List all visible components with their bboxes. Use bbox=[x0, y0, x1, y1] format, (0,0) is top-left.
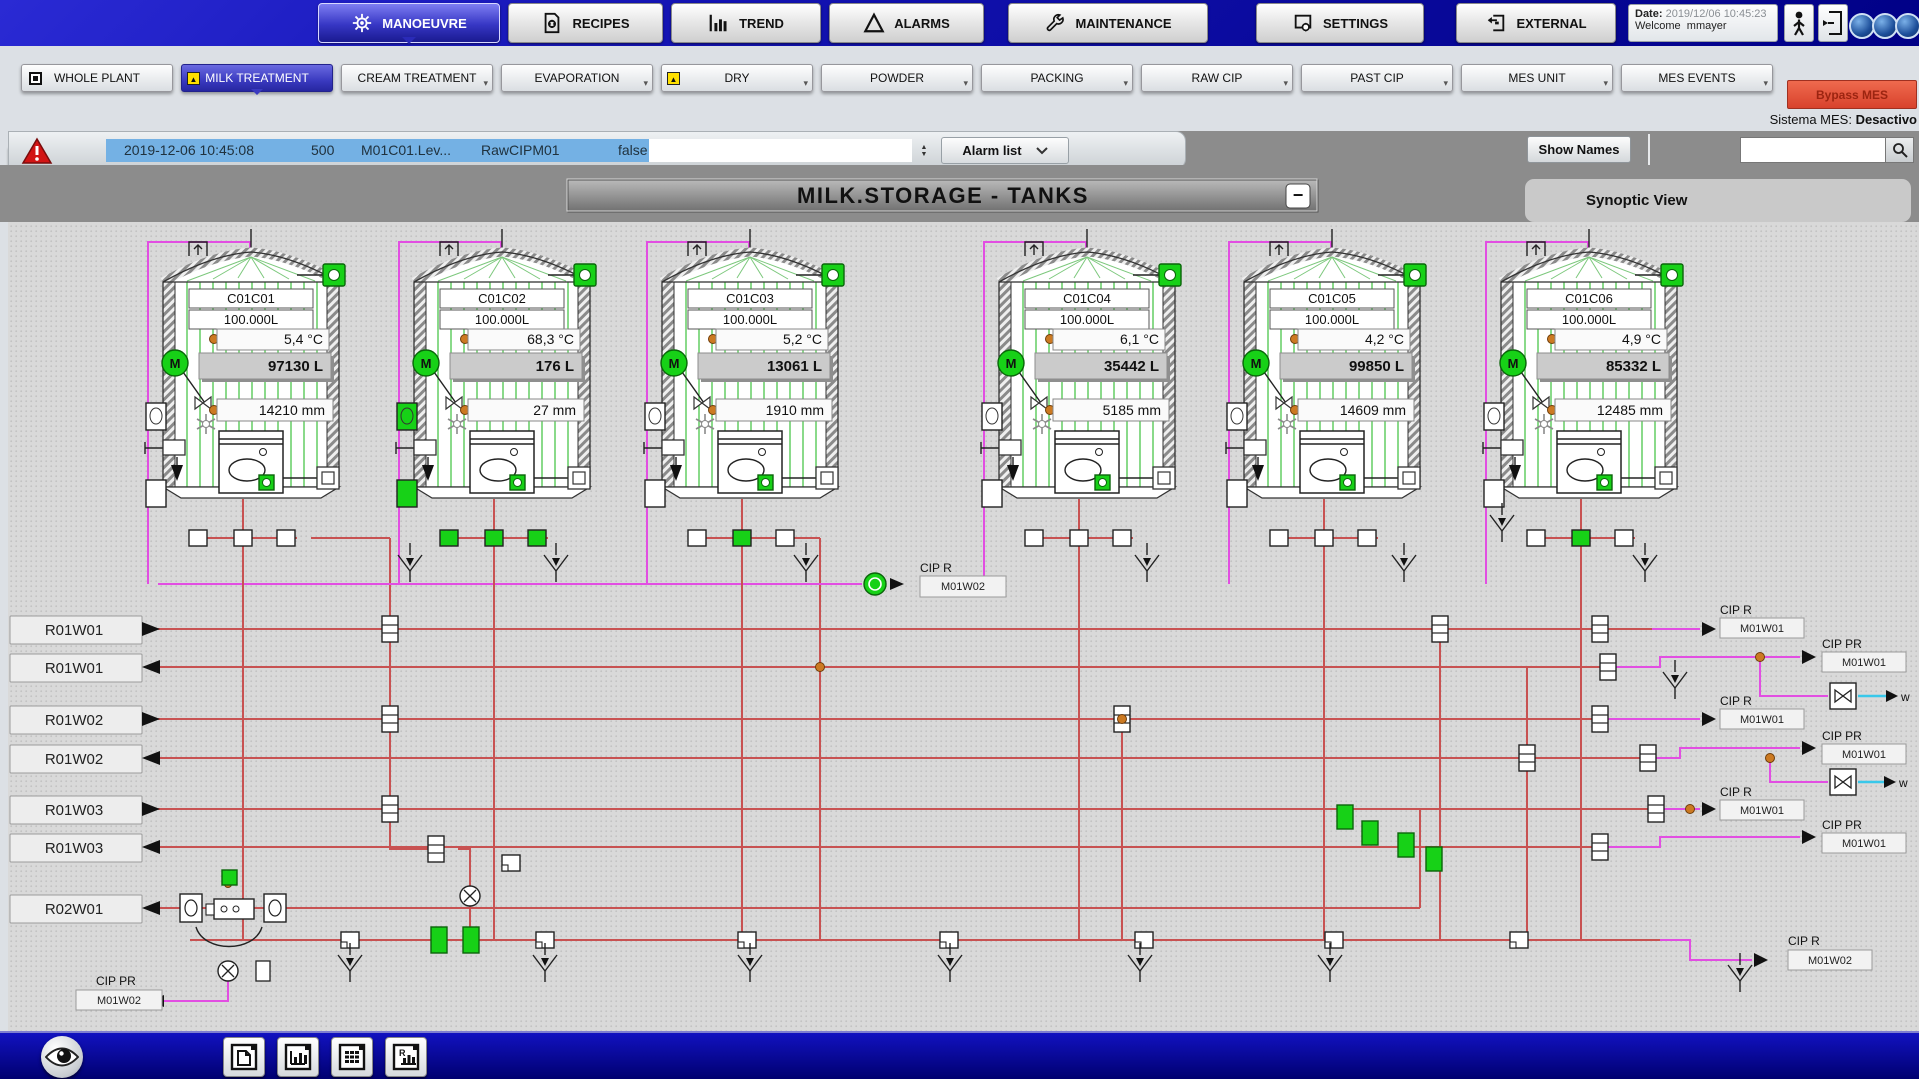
chevron-down-icon: ▾ bbox=[1123, 78, 1128, 89]
document-icon bbox=[230, 1043, 258, 1071]
mes-status-value: Desactivo bbox=[1856, 112, 1917, 127]
bottom-valve-1[interactable] bbox=[440, 530, 458, 546]
tank-level: 1910 mm bbox=[766, 402, 824, 418]
synoptic-panel-title: Synoptic View bbox=[1586, 192, 1688, 209]
left-valve[interactable] bbox=[1227, 403, 1247, 430]
left-valve-2[interactable] bbox=[1484, 480, 1504, 507]
plant-tab-label: MILK TREATMENT bbox=[205, 71, 309, 85]
nav-tab-trend[interactable]: TREND bbox=[671, 3, 821, 43]
plant-tab-label: EVAPORATION bbox=[535, 71, 620, 85]
bottom-valve-3[interactable] bbox=[1358, 530, 1376, 546]
bottom-valve-1[interactable] bbox=[688, 530, 706, 546]
chevron-down-icon: ▾ bbox=[643, 78, 648, 89]
cip-tag: M01W01 bbox=[1740, 805, 1784, 817]
nav-tab-settings[interactable]: SETTINGS bbox=[1256, 3, 1424, 43]
tank-temp: 4,9 °C bbox=[1622, 331, 1661, 347]
search-input[interactable] bbox=[1740, 137, 1886, 163]
alarm-code: 500 bbox=[311, 142, 334, 158]
chevron-down-icon: ▾ bbox=[1603, 78, 1608, 89]
route-label: R01W02 bbox=[45, 751, 103, 768]
cip-title: CIP R bbox=[1720, 603, 1752, 617]
cip-title: CIP PR bbox=[1822, 729, 1862, 743]
bar-chart-icon bbox=[284, 1043, 312, 1071]
bottom-valve-2[interactable] bbox=[1070, 530, 1088, 546]
route-label: R01W01 bbox=[45, 622, 103, 639]
plant-tab-label: RAW CIP bbox=[1192, 71, 1243, 85]
bottom-valve-2[interactable] bbox=[733, 530, 751, 546]
tank-level: 12485 mm bbox=[1597, 402, 1663, 418]
bottom-valve-2[interactable] bbox=[1572, 530, 1590, 546]
left-valve-2[interactable] bbox=[982, 480, 1002, 507]
plant-tab-powder[interactable]: POWDER▾ bbox=[821, 64, 973, 92]
bottom-valve-3[interactable] bbox=[1113, 530, 1131, 546]
search-button[interactable] bbox=[1886, 137, 1914, 163]
brand-logo-3 bbox=[1895, 13, 1919, 39]
chevron-down-icon: ▾ bbox=[963, 78, 968, 89]
plant-tab-label: MES UNIT bbox=[1508, 71, 1565, 85]
tank-volume: 35442 L bbox=[1104, 358, 1159, 375]
cip-title: CIP PR bbox=[96, 974, 136, 988]
cip-tag: M01W02 bbox=[97, 995, 141, 1007]
bottom-valve-3[interactable] bbox=[1615, 530, 1633, 546]
nav-tab-manoeuvre[interactable]: MANOEUVRE bbox=[318, 3, 500, 43]
tank-temp: 5,2 °C bbox=[783, 331, 822, 347]
bottom-valve-2[interactable] bbox=[1315, 530, 1333, 546]
chevron-down-icon: ▾ bbox=[803, 78, 808, 89]
water-valve-icon[interactable] bbox=[1830, 683, 1856, 709]
left-valve[interactable] bbox=[1484, 403, 1504, 430]
alarm-value: false bbox=[618, 142, 648, 158]
search-icon bbox=[1892, 142, 1908, 158]
green-valve[interactable] bbox=[1337, 805, 1353, 829]
nav-tab-external[interactable]: EXTERNAL bbox=[1456, 3, 1616, 43]
tank-volume: 13061 L bbox=[767, 358, 822, 375]
synoptic-canvas: M bbox=[0, 165, 1919, 1031]
external-door-icon bbox=[1485, 12, 1507, 34]
nav-tab-label: MANOEUVRE bbox=[382, 16, 467, 31]
plant-tab-label: WHOLE PLANT bbox=[54, 71, 140, 85]
cip-tag: M01W01 bbox=[1740, 623, 1784, 635]
route-label: R01W03 bbox=[45, 840, 103, 857]
cip-tag: M01W01 bbox=[1842, 749, 1886, 761]
settings-panel-icon bbox=[1292, 12, 1314, 34]
bottom-valve-1[interactable] bbox=[1025, 530, 1043, 546]
nav-tab-label: RECIPES bbox=[572, 16, 629, 31]
green-valve[interactable] bbox=[431, 927, 447, 953]
left-valve[interactable] bbox=[146, 403, 166, 430]
nav-tab-recipes[interactable]: RECIPES bbox=[508, 3, 663, 43]
tank-temp: 5,4 °C bbox=[284, 331, 323, 347]
route-label: R02W01 bbox=[45, 901, 103, 918]
table-view-button[interactable] bbox=[331, 1037, 373, 1077]
water-label: w bbox=[1898, 776, 1908, 790]
left-valve-2[interactable] bbox=[146, 480, 166, 507]
left-valve-2[interactable] bbox=[645, 480, 665, 507]
cip-pump-icon[interactable] bbox=[864, 573, 886, 595]
tank-id: C01C01 bbox=[227, 291, 275, 306]
cip-tag: M01W01 bbox=[1842, 838, 1886, 850]
grid-table-icon bbox=[338, 1043, 366, 1071]
bottom-valve-3[interactable] bbox=[277, 530, 295, 546]
bottom-valve-3[interactable] bbox=[528, 530, 546, 546]
alarm-warning-icon bbox=[21, 137, 53, 165]
eye-button[interactable] bbox=[41, 1036, 83, 1078]
report-chart-icon: R bbox=[392, 1043, 420, 1071]
alarm-list-dropdown[interactable]: Alarm list bbox=[941, 137, 1069, 164]
bottom-valve-3[interactable] bbox=[776, 530, 794, 546]
cip-title: CIP PR bbox=[1822, 818, 1862, 832]
search-area bbox=[1740, 137, 1914, 163]
bottom-valve-1[interactable] bbox=[1527, 530, 1545, 546]
date-label: Date: bbox=[1635, 8, 1663, 20]
green-valve[interactable] bbox=[1426, 847, 1442, 871]
trend-chart-icon bbox=[708, 12, 730, 34]
tank-temp: 6,1 °C bbox=[1120, 331, 1159, 347]
chart-view-button[interactable] bbox=[277, 1037, 319, 1077]
alarm-timestamp: 2019-12-06 10:45:08 bbox=[124, 142, 254, 158]
bottom-valve-2[interactable] bbox=[234, 530, 252, 546]
alarm-source: RawCIPM01 bbox=[481, 142, 560, 158]
cip-title: CIP R bbox=[1720, 785, 1752, 799]
report-view-button[interactable]: R bbox=[385, 1037, 427, 1077]
date-value: 2019/12/06 10:45:23 bbox=[1666, 8, 1767, 20]
whole-plant-icon bbox=[29, 72, 42, 85]
alarm-row[interactable]: 2019-12-06 10:45:08 500 M01C01.Lev... Ra… bbox=[106, 139, 912, 162]
tank-temp: 68,3 °C bbox=[527, 331, 574, 347]
chevron-down-icon bbox=[1036, 147, 1048, 155]
cip-title: CIP R bbox=[920, 561, 952, 575]
plant-tab-label: PACKING bbox=[1030, 71, 1083, 85]
tank-capacity: 100.000L bbox=[475, 312, 529, 327]
nav-tab-alarms[interactable]: ALARMS bbox=[829, 3, 984, 43]
tank-capacity: 100.000L bbox=[224, 312, 278, 327]
left-valve-2[interactable] bbox=[397, 480, 417, 507]
chevron-down-icon: ▾ bbox=[1443, 78, 1448, 89]
route-label: R01W01 bbox=[45, 660, 103, 677]
cip-tag: M01W01 bbox=[1842, 657, 1886, 669]
bottom-valve-2[interactable] bbox=[485, 530, 503, 546]
warning-icon: ▲ bbox=[667, 72, 680, 85]
plant-tab-past-cip[interactable]: PAST CIP▾ bbox=[1301, 64, 1453, 92]
cip-tag: M01W02 bbox=[1808, 955, 1852, 967]
skid-valve[interactable] bbox=[264, 894, 286, 922]
alarm-list-label: Alarm list bbox=[962, 143, 1021, 158]
plant-tab-packing[interactable]: PACKING▾ bbox=[981, 64, 1133, 92]
tank-capacity: 100.000L bbox=[1562, 312, 1616, 327]
logout-button[interactable] bbox=[1818, 4, 1848, 42]
welcome-label: Welcome bbox=[1635, 20, 1681, 32]
tank-volume: 99850 L bbox=[1349, 358, 1404, 375]
plant-tab-row: WHOLE PLANT ▲ MILK TREATMENT CREAM TREAT… bbox=[0, 46, 1919, 133]
pump-icon[interactable] bbox=[218, 961, 238, 981]
plant-tab-milk-treatment[interactable]: ▲ MILK TREATMENT bbox=[181, 64, 333, 92]
bottom-valve-1[interactable] bbox=[189, 530, 207, 546]
nav-tab-label: ALARMS bbox=[894, 16, 950, 31]
minimize-label: − bbox=[1293, 185, 1304, 205]
toolbar-separator bbox=[1648, 134, 1650, 165]
tank-id: C01C04 bbox=[1063, 291, 1111, 306]
left-valve-2[interactable] bbox=[1227, 480, 1247, 507]
plant-tab-label: POWDER bbox=[870, 71, 924, 85]
green-valve[interactable] bbox=[1398, 833, 1414, 857]
plant-tab-cream-treatment[interactable]: CREAM TREATMENT▾ bbox=[341, 64, 493, 92]
plant-tab-evaporation[interactable]: EVAPORATION▾ bbox=[501, 64, 653, 92]
green-valve[interactable] bbox=[463, 927, 479, 953]
person-icon bbox=[1790, 10, 1808, 36]
tank-volume: 85332 L bbox=[1606, 358, 1661, 375]
new-page-button[interactable] bbox=[223, 1037, 265, 1077]
tank-volume: 97130 L bbox=[268, 358, 323, 375]
user-name: mmayer bbox=[1687, 20, 1727, 32]
route-label: R01W03 bbox=[45, 802, 103, 819]
bypass-mes-label: Bypass MES bbox=[1816, 88, 1888, 102]
plant-tab-label: DRY bbox=[724, 71, 749, 85]
eye-icon bbox=[45, 1046, 79, 1068]
nav-tab-label: SETTINGS bbox=[1323, 16, 1388, 31]
plant-tab-label: MES EVENTS bbox=[1658, 71, 1735, 85]
alarm-spinner[interactable]: ▲▼ bbox=[917, 139, 931, 162]
nav-tab-maintenance[interactable]: MAINTENANCE bbox=[1008, 3, 1208, 43]
synoptic-title: MILK.STORAGE - TANKS bbox=[797, 183, 1089, 208]
mes-status: Sistema MES: Desactivo bbox=[1697, 112, 1917, 127]
warning-icon: ▲ bbox=[187, 72, 200, 85]
session-panel: Date: 2019/12/06 10:45:23 Welcome mmayer bbox=[1628, 4, 1778, 42]
cip-title: CIP PR bbox=[1822, 637, 1862, 651]
plant-tab-mes-events[interactable]: MES EVENTS▾ bbox=[1621, 64, 1773, 92]
alarm-bar: 2019-12-06 10:45:08 500 M01C01.Lev... Ra… bbox=[8, 131, 1186, 169]
synoptic-title-bar: MILK.STORAGE - TANKS − bbox=[567, 179, 1318, 212]
tank-id: C01C06 bbox=[1565, 291, 1613, 306]
plant-tab-dry[interactable]: ▲ DRY▾ bbox=[661, 64, 813, 92]
tank-level: 14210 mm bbox=[259, 402, 325, 418]
synoptic-panel-header bbox=[1525, 179, 1911, 222]
tank-capacity: 100.000L bbox=[1060, 312, 1114, 327]
bypass-mes-button[interactable]: Bypass MES bbox=[1787, 80, 1917, 109]
green-valve[interactable] bbox=[222, 870, 237, 885]
nav-tab-label: EXTERNAL bbox=[1516, 16, 1586, 31]
tank-id: C01C03 bbox=[726, 291, 774, 306]
alarm-triangle-icon bbox=[863, 12, 885, 34]
svg-text:R: R bbox=[399, 1048, 406, 1058]
route-label: R01W02 bbox=[45, 712, 103, 729]
green-valve[interactable] bbox=[1362, 821, 1378, 845]
gear-icon bbox=[351, 12, 373, 34]
chevron-down-icon: ▾ bbox=[1283, 78, 1288, 89]
water-label: w bbox=[1900, 690, 1910, 704]
tank-id: C01C05 bbox=[1308, 291, 1356, 306]
nav-tab-label: MAINTENANCE bbox=[1075, 16, 1171, 31]
tank-capacity: 100.000L bbox=[723, 312, 777, 327]
plant-tab-mes-unit[interactable]: MES UNIT▾ bbox=[1461, 64, 1613, 92]
plant-tab-raw-cip[interactable]: RAW CIP▾ bbox=[1141, 64, 1293, 92]
scada-app: MANOEUVRE RECIPES TREND ALARMS MAINTENAN… bbox=[0, 0, 1919, 1079]
tank-volume: 176 L bbox=[536, 358, 574, 375]
tank-temp: 4,2 °C bbox=[1365, 331, 1404, 347]
cip-title: CIP R bbox=[1788, 934, 1820, 948]
tank-level: 5185 mm bbox=[1103, 402, 1161, 418]
tank-level: 27 mm bbox=[533, 402, 576, 418]
chevron-down-icon: ▾ bbox=[483, 78, 488, 89]
exit-door-icon bbox=[1821, 10, 1845, 36]
user-button[interactable] bbox=[1784, 4, 1814, 42]
left-valve[interactable] bbox=[982, 403, 1002, 430]
wrench-icon bbox=[1044, 12, 1066, 34]
chevron-down-icon: ▾ bbox=[1763, 78, 1768, 89]
bottom-valve-1[interactable] bbox=[1270, 530, 1288, 546]
recipe-document-icon bbox=[541, 12, 563, 34]
cip-tag: M01W01 bbox=[1740, 714, 1784, 726]
left-valve[interactable] bbox=[397, 403, 417, 430]
alarm-tag: M01C01.Lev... bbox=[361, 142, 451, 158]
left-valve[interactable] bbox=[645, 403, 665, 430]
tank-capacity: 100.000L bbox=[1305, 312, 1359, 327]
cip-title: CIP R bbox=[1720, 694, 1752, 708]
tank-level: 14609 mm bbox=[1340, 402, 1406, 418]
top-nav-bar: MANOEUVRE RECIPES TREND ALARMS MAINTENAN… bbox=[0, 0, 1919, 46]
skid-valve[interactable] bbox=[180, 894, 202, 922]
nav-tab-label: TREND bbox=[739, 16, 784, 31]
tank-id: C01C02 bbox=[478, 291, 526, 306]
show-names-label: Show Names bbox=[1539, 142, 1620, 157]
water-valve-icon[interactable] bbox=[1830, 769, 1856, 795]
plant-tab-label: CREAM TREATMENT bbox=[358, 71, 477, 85]
show-names-button[interactable]: Show Names bbox=[1527, 136, 1631, 163]
plant-tab-label: PAST CIP bbox=[1350, 71, 1404, 85]
bottom-bar: R bbox=[0, 1031, 1919, 1079]
plant-tab-whole-plant[interactable]: WHOLE PLANT bbox=[21, 64, 173, 92]
cip-tag: M01W02 bbox=[941, 581, 985, 593]
